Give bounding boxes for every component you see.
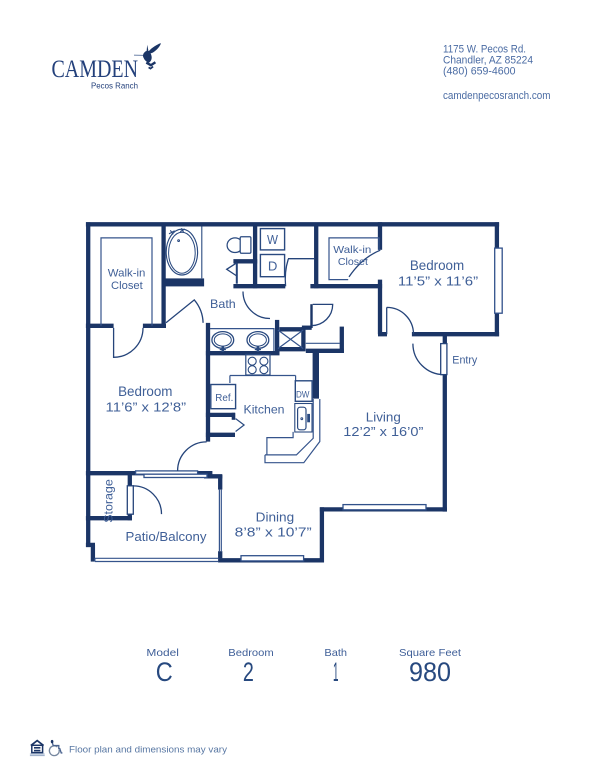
svg-text:C: C <box>156 657 173 687</box>
svg-text:DW: DW <box>296 390 310 401</box>
svg-text:Entry: Entry <box>452 355 477 367</box>
svg-text:camdenpecosranch.com: camdenpecosranch.com <box>443 90 551 102</box>
svg-text:Ref.: Ref. <box>215 393 233 404</box>
svg-text:D: D <box>268 258 278 273</box>
svg-text:Kitchen: Kitchen <box>244 403 285 417</box>
svg-text:Bedroom: Bedroom <box>118 384 172 399</box>
svg-text:Floor plan and dimensions may: Floor plan and dimensions may vary <box>69 744 227 755</box>
svg-text:980: 980 <box>409 657 451 687</box>
svg-text:CAMDEN: CAMDEN <box>52 54 139 83</box>
svg-text:Bath: Bath <box>210 297 236 311</box>
svg-text:Bedroom: Bedroom <box>410 258 464 273</box>
svg-text:Pecos Ranch: Pecos Ranch <box>91 81 138 90</box>
svg-text:Closet: Closet <box>338 256 368 268</box>
svg-text:Closet: Closet <box>111 280 143 292</box>
svg-text:Walk-in: Walk-in <box>333 244 371 256</box>
svg-text:11’5” x 11’6”: 11’5” x 11’6” <box>398 274 478 289</box>
svg-text:Patio/Balcony: Patio/Balcony <box>126 530 208 544</box>
svg-text:(480) 659-4600: (480) 659-4600 <box>443 65 516 77</box>
svg-text:Walk-in: Walk-in <box>108 268 146 280</box>
svg-text:1: 1 <box>333 657 339 687</box>
svg-text:11’6” x 12’8”: 11’6” x 12’8” <box>106 399 187 414</box>
svg-text:Living: Living <box>366 410 401 425</box>
svg-text:W: W <box>267 232 279 247</box>
svg-text:12’2” x 16’0”: 12’2” x 16’0” <box>343 424 423 439</box>
svg-text:8’8” x 10’7”: 8’8” x 10’7” <box>235 525 312 540</box>
svg-text:2: 2 <box>243 657 254 687</box>
svg-text:Storage: Storage <box>103 479 116 523</box>
svg-text:Dining: Dining <box>256 510 295 525</box>
